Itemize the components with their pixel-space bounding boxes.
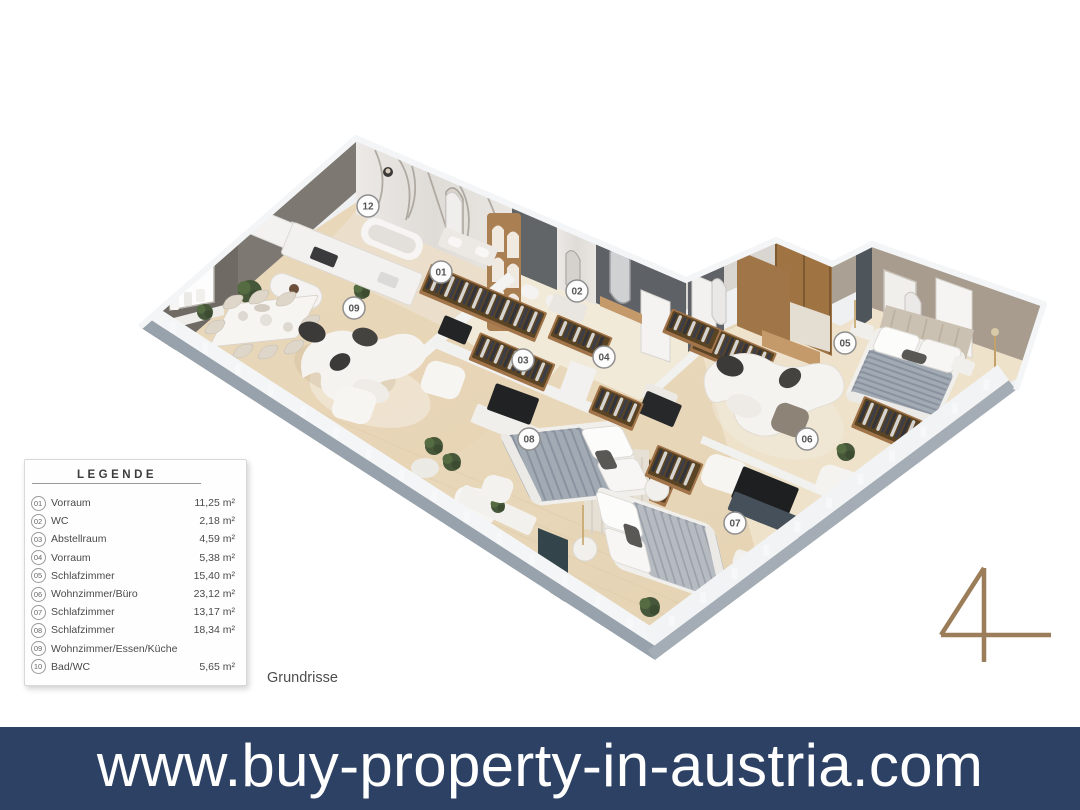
svg-text:01: 01 — [435, 268, 447, 279]
svg-text:03: 03 — [517, 356, 529, 367]
svg-text:09: 09 — [348, 304, 360, 315]
svg-text:02: 02 — [571, 287, 583, 298]
svg-text:12: 12 — [362, 202, 374, 213]
svg-text:07: 07 — [729, 519, 741, 530]
svg-text:08: 08 — [523, 435, 535, 446]
svg-text:04: 04 — [598, 353, 610, 364]
svg-text:05: 05 — [839, 339, 851, 350]
svg-text:06: 06 — [801, 435, 813, 446]
